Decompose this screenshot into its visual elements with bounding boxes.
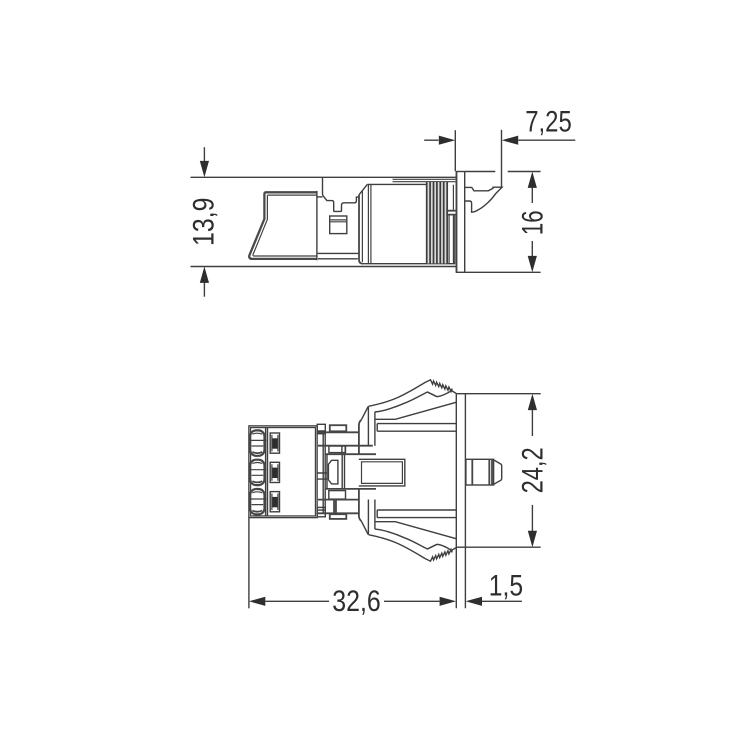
svg-text:24,2: 24,2 (517, 447, 550, 493)
svg-text:16: 16 (516, 211, 549, 236)
svg-text:7,25: 7,25 (525, 105, 572, 138)
svg-text:13,9: 13,9 (188, 197, 221, 246)
svg-text:1,5: 1,5 (489, 570, 523, 603)
svg-text:32,6: 32,6 (332, 585, 381, 618)
